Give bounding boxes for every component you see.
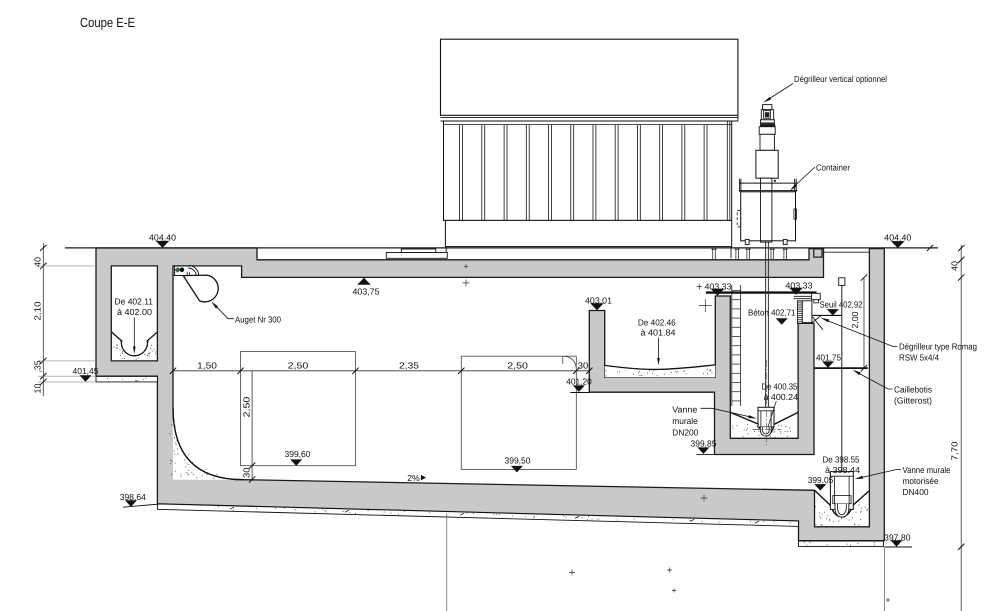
svg-text:Vanne murale: Vanne murale: [903, 465, 951, 475]
svg-text:40: 40: [33, 257, 43, 267]
svg-text:399,60: 399,60: [285, 449, 311, 459]
svg-text:399,05: 399,05: [808, 475, 834, 485]
svg-text:Caillebotis: Caillebotis: [894, 384, 933, 394]
svg-text:399,50: 399,50: [505, 456, 531, 466]
svg-text:Container: Container: [816, 162, 850, 172]
svg-text:401,45: 401,45: [73, 366, 99, 376]
svg-text:30: 30: [578, 360, 589, 370]
svg-text:à 402.00: à 402.00: [117, 307, 152, 317]
svg-text:30: 30: [242, 467, 252, 478]
svg-text:10: 10: [33, 383, 43, 393]
svg-text:DN200: DN200: [672, 427, 698, 437]
svg-text:,35: ,35: [33, 360, 43, 372]
svg-text:401,75: 401,75: [816, 353, 841, 363]
svg-text:motorisée: motorisée: [903, 476, 939, 486]
svg-text:Dégrilleur vertical optionnel: Dégrilleur vertical optionnel: [794, 74, 887, 84]
svg-text:De 398.55: De 398.55: [823, 455, 860, 465]
svg-text:murale: murale: [672, 416, 698, 426]
svg-text:DN400: DN400: [903, 487, 929, 497]
svg-text:404,40: 404,40: [149, 232, 176, 242]
svg-text:401,20: 401,20: [566, 377, 592, 387]
svg-text:à 398.44: à 398.44: [825, 465, 860, 475]
svg-text:403,75: 403,75: [353, 287, 380, 297]
svg-text:40: 40: [950, 261, 960, 271]
svg-text:7,70: 7,70: [950, 441, 960, 460]
svg-text:1,50: 1,50: [197, 360, 217, 370]
svg-text:Vanne: Vanne: [672, 404, 697, 414]
svg-text:2,50: 2,50: [288, 360, 309, 370]
svg-text:2,35: 2,35: [399, 360, 419, 370]
svg-text:2,50: 2,50: [507, 360, 528, 370]
svg-text:Auget Nr 300: Auget Nr 300: [235, 314, 281, 324]
svg-text:Béton 402,71: Béton 402,71: [748, 308, 796, 318]
svg-text:Coupe E-E: Coupe E-E: [80, 15, 135, 30]
svg-text:RSW 5x4/4: RSW 5x4/4: [899, 353, 939, 363]
svg-text:De 402.11: De 402.11: [115, 297, 154, 307]
svg-text:Seuil 402,92: Seuil 402,92: [820, 299, 863, 309]
svg-text:2,00: 2,00: [850, 311, 860, 328]
svg-text:Dégrilleur type Romag: Dégrilleur type Romag: [899, 342, 977, 352]
svg-text:404,40: 404,40: [884, 233, 911, 243]
svg-text:399,85: 399,85: [691, 439, 717, 449]
svg-text:à 400.24: à 400.24: [764, 392, 799, 402]
svg-text:à 401.84: à 401.84: [641, 328, 676, 338]
svg-text:(Gitterost): (Gitterost): [894, 395, 932, 405]
svg-text:2,50: 2,50: [242, 397, 252, 418]
svg-text:2,10: 2,10: [33, 301, 43, 320]
svg-text:De 402.46: De 402.46: [638, 317, 676, 327]
svg-text:2%: 2%: [407, 473, 420, 483]
svg-text:De 400.35: De 400.35: [761, 382, 797, 392]
